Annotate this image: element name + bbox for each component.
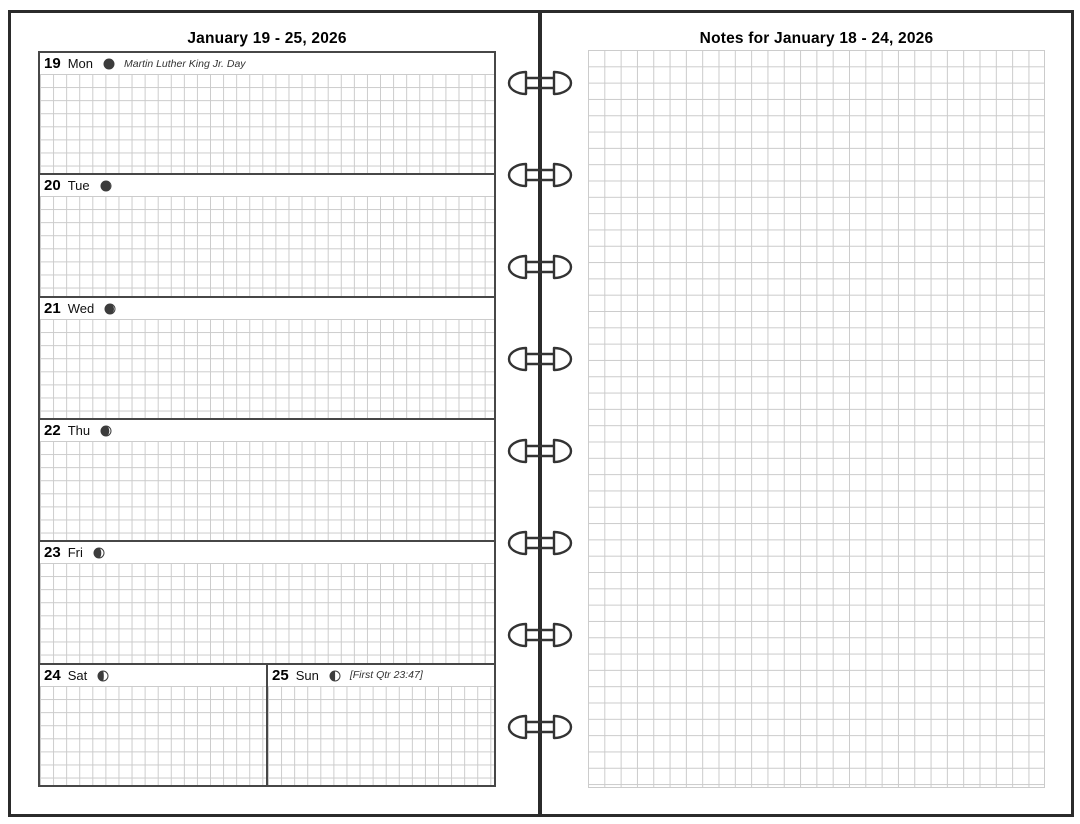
day-header-thu: 22Thu (40, 420, 494, 441)
week-page-title: January 19 - 25, 2026 (38, 30, 496, 48)
day-block-sat: 24Sat (40, 665, 268, 785)
day-number: 21 (44, 300, 61, 317)
day-note: [First Qtr 23:47] (350, 669, 423, 681)
day-block-tue: 20Tue (40, 173, 494, 295)
day-writing-grid (40, 686, 266, 785)
day-number: 25 (272, 667, 289, 684)
day-name: Tue (68, 178, 90, 193)
day-number: 22 (44, 422, 61, 439)
day-writing-grid (40, 441, 494, 540)
day-name: Fri (68, 545, 83, 560)
day-block-wed: 21Wed (40, 296, 494, 418)
day-name: Thu (68, 423, 90, 438)
day-name: Mon (68, 56, 93, 71)
notes-writing-grid (588, 50, 1045, 788)
day-writing-grid (268, 686, 494, 785)
day-block-mon: 19MonMartin Luther King Jr. Day (40, 53, 494, 173)
day-writing-grid (40, 319, 494, 418)
day-header-tue: 20Tue (40, 175, 494, 196)
day-block-sun: 25Sun[First Qtr 23:47] (268, 665, 494, 785)
day-name: Sat (68, 668, 88, 683)
day-writing-grid (40, 196, 494, 295)
day-block-fri: 23Fri (40, 540, 494, 662)
day-number: 24 (44, 667, 61, 684)
moon-phase-icon (329, 670, 341, 682)
moon-phase-icon (93, 547, 105, 559)
moon-phase-icon (100, 180, 112, 192)
moon-phase-icon (104, 303, 116, 315)
notes-page-title: Notes for January 18 - 24, 2026 (588, 30, 1045, 48)
day-header-mon: 19MonMartin Luther King Jr. Day (40, 53, 494, 74)
day-number: 23 (44, 544, 61, 561)
day-writing-grid (40, 74, 494, 173)
moon-phase-icon (103, 58, 115, 70)
week-grid-page: 19MonMartin Luther King Jr. Day20Tue21We… (38, 51, 496, 787)
day-header-wed: 21Wed (40, 298, 494, 319)
weekend-row: 24Sat25Sun[First Qtr 23:47] (40, 663, 494, 785)
day-name: Wed (68, 301, 95, 316)
day-header-fri: 23Fri (40, 542, 494, 563)
day-block-thu: 22Thu (40, 418, 494, 540)
day-number: 19 (44, 55, 61, 72)
day-writing-grid (40, 563, 494, 662)
day-name: Sun (296, 668, 319, 683)
day-number: 20 (44, 177, 61, 194)
moon-phase-icon (100, 425, 112, 437)
day-note: Martin Luther King Jr. Day (124, 58, 246, 70)
moon-phase-icon (97, 670, 109, 682)
day-header-sun: 25Sun[First Qtr 23:47] (268, 665, 494, 686)
day-header-sat: 24Sat (40, 665, 266, 686)
